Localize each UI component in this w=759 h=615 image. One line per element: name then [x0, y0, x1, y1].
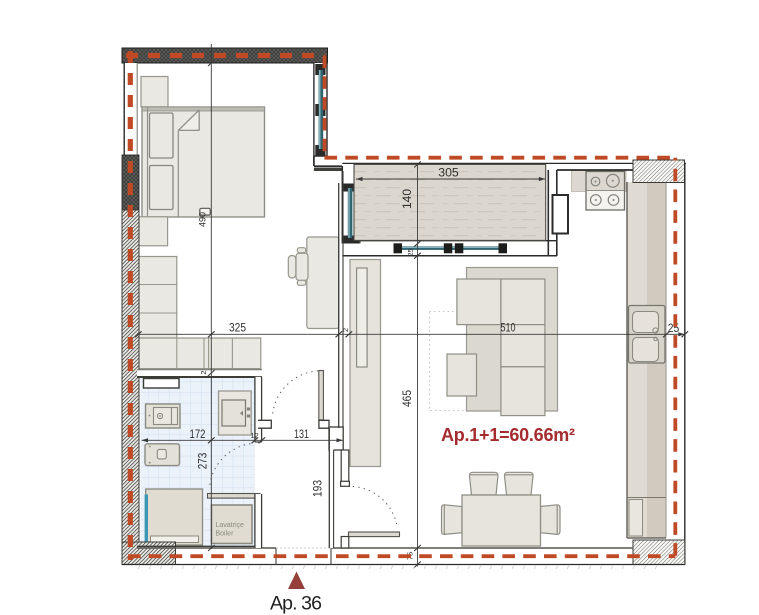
svg-text:2: 2 [199, 370, 208, 374]
svg-text:Ap.1+1=60.66m²: Ap.1+1=60.66m² [441, 425, 575, 445]
svg-text:273: 273 [198, 453, 210, 470]
svg-text:12: 12 [250, 431, 258, 440]
svg-text:172: 172 [190, 429, 206, 441]
svg-text:Lavatriçe: Lavatriçe [216, 522, 245, 529]
svg-text:325: 325 [229, 323, 246, 335]
svg-text:131: 131 [294, 429, 309, 441]
svg-text:305: 305 [438, 168, 459, 180]
svg-text:2: 2 [341, 328, 350, 332]
svg-text:465: 465 [402, 390, 414, 407]
svg-text:Ap. 36: Ap. 36 [270, 593, 322, 615]
svg-text:510: 510 [501, 323, 516, 335]
svg-text:25: 25 [406, 248, 415, 256]
svg-text:490: 490 [198, 212, 208, 227]
svg-text:193: 193 [313, 480, 325, 497]
svg-text:140: 140 [402, 189, 414, 209]
svg-text:Boiler: Boiler [216, 531, 235, 538]
